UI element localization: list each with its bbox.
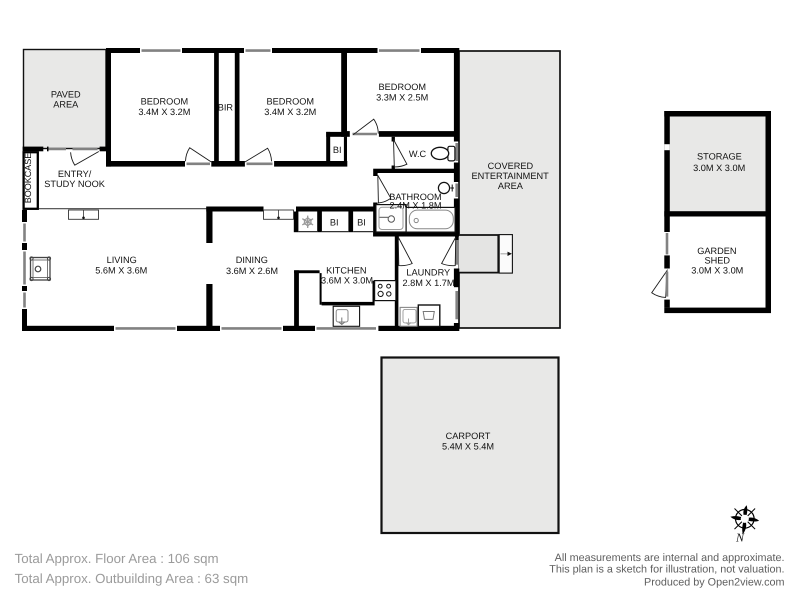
svg-text:Produced by Open2view.com: Produced by Open2view.com <box>644 577 784 589</box>
svg-text:BI: BI <box>330 217 339 227</box>
svg-text:2.8M X 1.7M: 2.8M X 1.7M <box>402 278 454 288</box>
svg-text:3.0M X 3.0M: 3.0M X 3.0M <box>691 266 743 276</box>
svg-text:5.6M X 3.6M: 5.6M X 3.6M <box>95 266 147 276</box>
svg-text:BEDROOM: BEDROOM <box>379 82 426 92</box>
svg-text:This plan is a sketch for illu: This plan is a sketch for illustration, … <box>549 564 784 576</box>
svg-text:BEDROOM: BEDROOM <box>141 96 188 106</box>
svg-text:DINING: DINING <box>236 255 268 265</box>
svg-text:3.3M X 2.5M: 3.3M X 2.5M <box>376 92 428 102</box>
svg-text:AREA: AREA <box>498 181 524 191</box>
svg-text:GARDEN: GARDEN <box>697 246 736 256</box>
svg-text:N: N <box>735 531 745 545</box>
svg-text:3.4M X 3.2M: 3.4M X 3.2M <box>264 107 316 117</box>
svg-text:BI: BI <box>333 145 342 155</box>
svg-text:W.C: W.C <box>409 149 427 159</box>
svg-text:3.4M X 3.2M: 3.4M X 3.2M <box>138 107 190 117</box>
svg-text:CARPORT: CARPORT <box>446 431 491 441</box>
svg-text:STORAGE: STORAGE <box>697 152 742 162</box>
svg-text:SHED: SHED <box>705 256 731 266</box>
svg-text:3.0M X 3.0M: 3.0M X 3.0M <box>693 163 745 173</box>
svg-text:STUDY NOOK: STUDY NOOK <box>44 179 105 189</box>
svg-text:ENTRY/: ENTRY/ <box>58 169 92 179</box>
svg-text:Total Approx. Outbuilding Area: Total Approx. Outbuilding Area : 63 sqm <box>15 571 249 586</box>
svg-text:BOOKCASE: BOOKCASE <box>23 153 33 204</box>
svg-text:2.4M X 1.8M: 2.4M X 1.8M <box>389 201 441 211</box>
svg-text:5.4M X 5.4M: 5.4M X 5.4M <box>442 441 494 451</box>
svg-text:BI: BI <box>357 217 366 227</box>
svg-text:BIR: BIR <box>218 103 234 113</box>
svg-text:3.6M X 2.6M: 3.6M X 2.6M <box>226 266 278 276</box>
svg-text:AREA: AREA <box>53 99 79 109</box>
svg-text:PAVED: PAVED <box>51 90 81 100</box>
svg-text:3.6M X 3.0M: 3.6M X 3.0M <box>321 275 373 285</box>
svg-text:COVERED: COVERED <box>488 161 534 171</box>
svg-text:LIVING: LIVING <box>107 255 137 265</box>
svg-text:ENTERTAINMENT: ENTERTAINMENT <box>471 171 549 181</box>
svg-text:Total Approx. Floor Area : 106: Total Approx. Floor Area : 106 sqm <box>15 551 219 566</box>
svg-text:KITCHEN: KITCHEN <box>326 265 366 275</box>
svg-text:All measurements are internal: All measurements are internal and approx… <box>555 552 785 564</box>
svg-text:BEDROOM: BEDROOM <box>267 96 314 106</box>
svg-text:LAUNDRY: LAUNDRY <box>406 267 450 277</box>
